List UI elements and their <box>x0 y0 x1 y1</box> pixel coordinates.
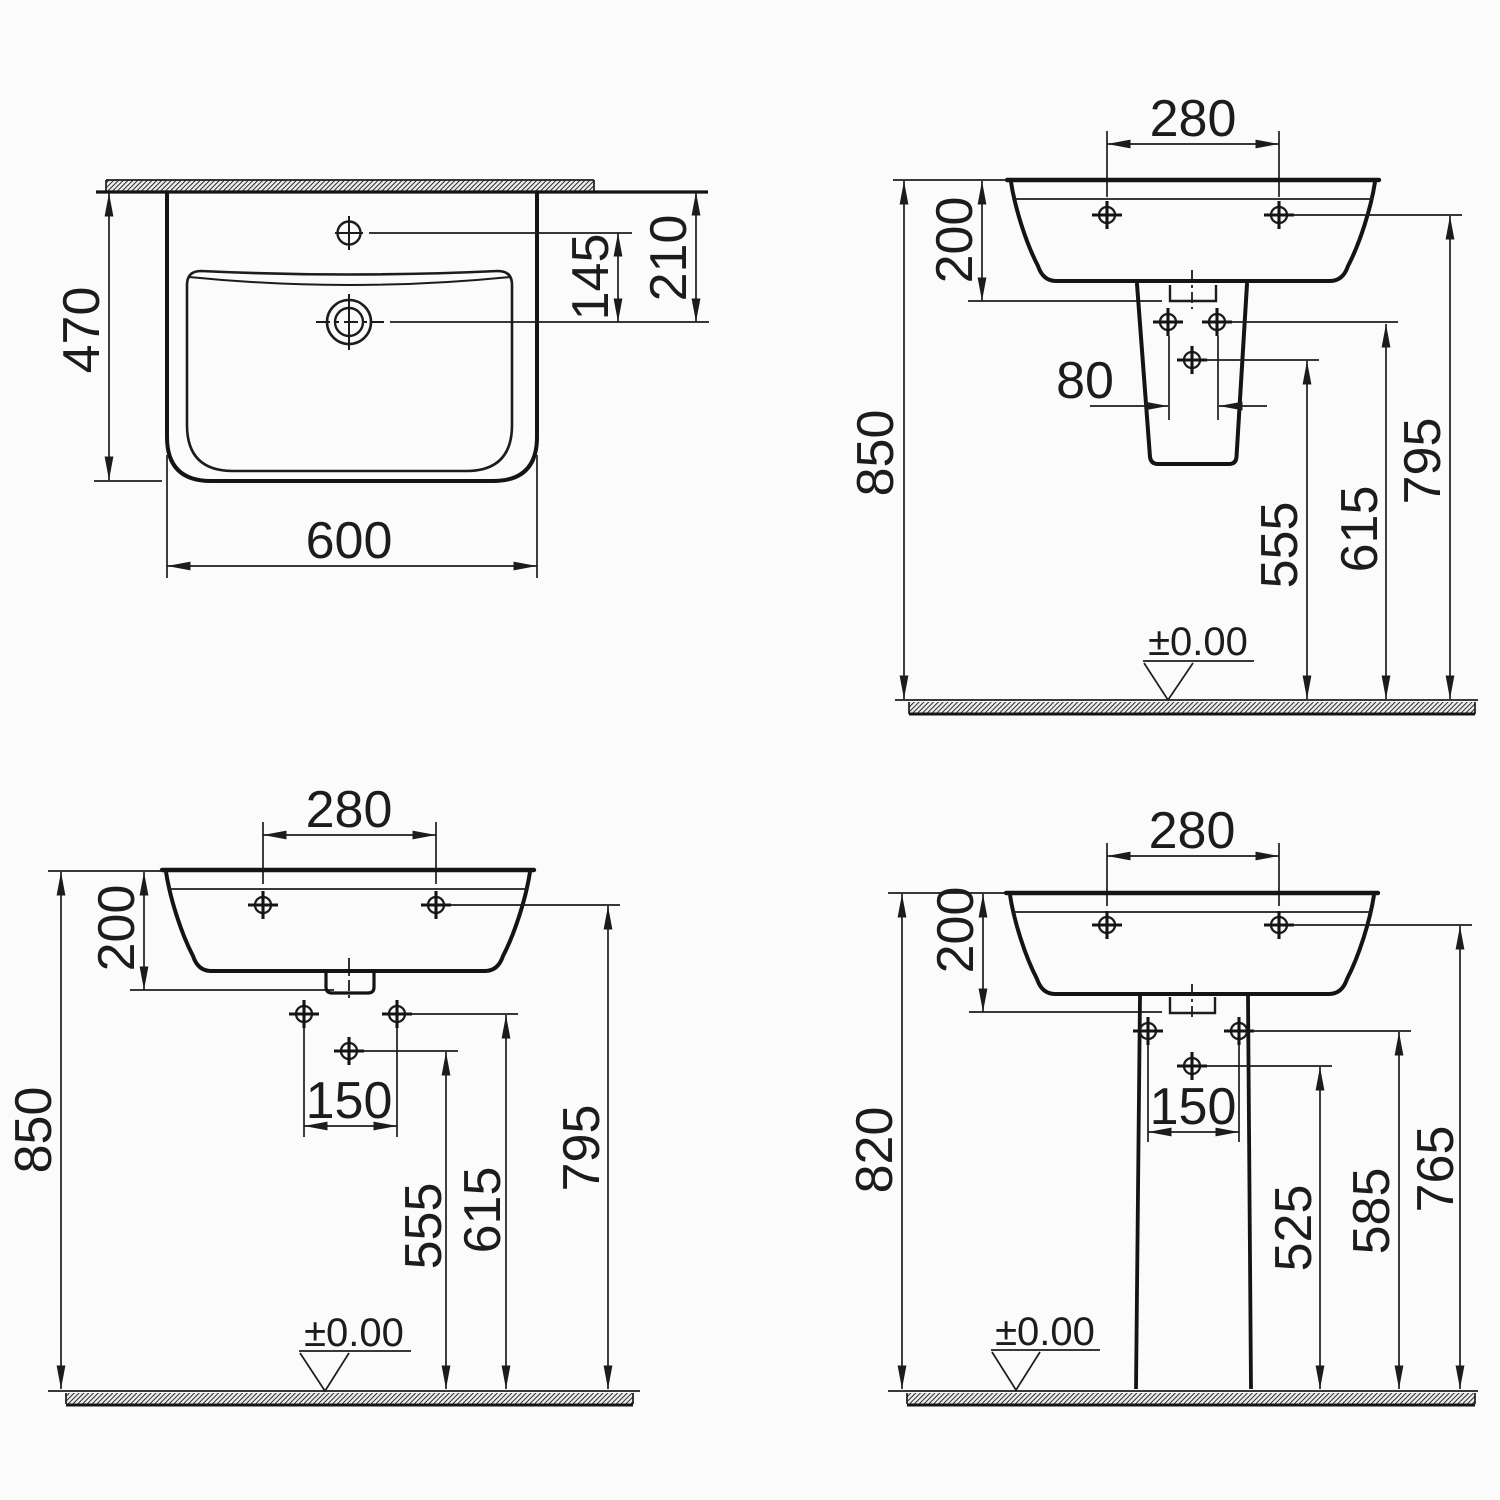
svg-text:±0.00: ±0.00 <box>995 1310 1095 1354</box>
svg-text:200: 200 <box>88 885 146 972</box>
svg-text:795: 795 <box>553 1105 611 1192</box>
svg-text:±0.00: ±0.00 <box>304 1311 404 1355</box>
svg-text:200: 200 <box>927 887 985 974</box>
svg-text:615: 615 <box>1331 486 1389 573</box>
svg-text:210: 210 <box>640 215 698 302</box>
svg-text:150: 150 <box>1150 1078 1237 1136</box>
svg-text:280: 280 <box>1149 802 1236 860</box>
svg-text:600: 600 <box>306 512 393 570</box>
svg-text:615: 615 <box>454 1167 512 1254</box>
svg-text:145: 145 <box>562 234 620 321</box>
svg-text:555: 555 <box>1251 502 1309 589</box>
svg-text:795: 795 <box>1394 418 1452 505</box>
svg-text:150: 150 <box>306 1072 393 1130</box>
svg-text:200: 200 <box>926 197 984 284</box>
svg-text:585: 585 <box>1343 1168 1401 1255</box>
svg-text:555: 555 <box>395 1183 453 1270</box>
svg-text:±0.00: ±0.00 <box>1148 620 1248 664</box>
svg-text:820: 820 <box>846 1107 904 1194</box>
svg-text:850: 850 <box>847 410 905 497</box>
svg-text:470: 470 <box>53 287 111 374</box>
svg-text:525: 525 <box>1265 1185 1323 1272</box>
svg-text:280: 280 <box>306 781 393 839</box>
svg-text:80: 80 <box>1056 352 1114 410</box>
svg-text:850: 850 <box>5 1087 63 1174</box>
svg-text:765: 765 <box>1407 1126 1465 1213</box>
svg-text:280: 280 <box>1150 90 1237 148</box>
